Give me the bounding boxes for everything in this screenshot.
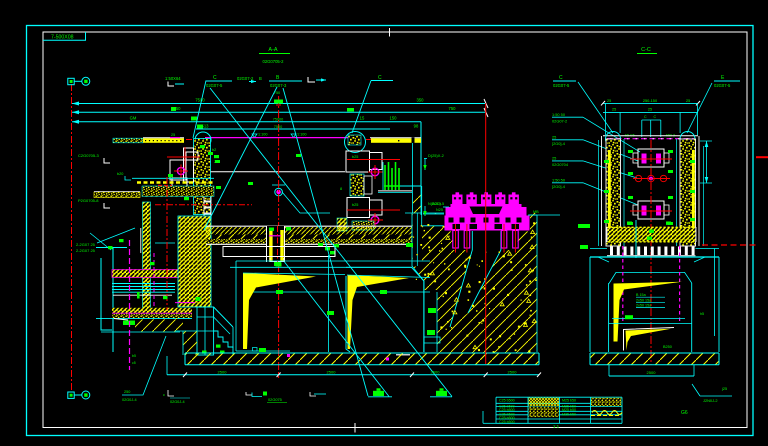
svg-text:25: 25 [607,99,611,103]
svg-text:98: 98 [414,124,419,129]
svg-text:02G07-5: 02G07-5 [206,83,223,88]
svg-text:M25 b50: M25 b50 [562,408,576,412]
svg-text:7500: 7500 [195,98,205,103]
svg-text:250-150: 250-150 [643,98,658,103]
svg-text:250: 250 [124,390,130,394]
svg-text:2x50 15a: 2x50 15a [636,304,652,308]
svg-text:b2: b2 [212,148,216,152]
svg-text:B: B [259,76,262,81]
svg-text:b5: b5 [132,354,136,358]
svg-text:A-A: A-A [268,47,278,53]
svg-text:M25 b50: M25 b50 [562,412,576,416]
svg-text:C25 b500: C25 b500 [499,399,515,403]
svg-text:C25 b500: C25 b500 [499,408,515,412]
svg-text:02G07-5: 02G07-5 [714,83,731,88]
svg-text:J2N0J-2: J2N0J-2 [703,398,718,403]
svg-text:1:50 50: 1:50 50 [552,178,566,183]
svg-text:2500: 2500 [218,370,228,375]
svg-text:02G07-5: 02G07-5 [553,83,570,88]
svg-text:75000: 75000 [273,118,284,122]
svg-text:b20: b20 [117,172,123,176]
svg-text:G6: G6 [681,410,688,416]
svg-text:1:50 50: 1:50 50 [552,112,566,117]
svg-text:1:50X64: 1:50X64 [165,76,181,81]
svg-text:[2G0]-4: [2G0]-4 [552,184,566,189]
svg-text:25: 25 [552,156,556,161]
svg-text:C: C [654,115,657,119]
svg-text:b25: b25 [352,155,358,159]
svg-text:25: 25 [612,108,616,112]
svg-text:2500: 2500 [647,370,657,375]
svg-text:P2G0705-8: P2G0705-8 [78,198,99,203]
svg-text:c5: c5 [132,361,136,365]
svg-text:7500: 7500 [274,125,282,129]
svg-text:25: 25 [171,133,175,137]
svg-text:02G07-2: 02G07-2 [552,118,567,123]
svg-text:B250: B250 [663,345,672,349]
svg-text:B 15a: B 15a [636,293,647,297]
svg-text:02G0704: 02G0704 [552,162,569,167]
svg-text:150: 150 [390,116,398,121]
svg-text:MB: MB [533,210,539,214]
svg-text:1:1: 1:1 [553,424,560,429]
svg-text:02G0705-2: 02G0705-2 [263,59,285,64]
svg-text:C: C [559,75,563,81]
svg-text:GM: GM [130,116,137,121]
svg-text:02G0J-4: 02G0J-4 [170,400,185,404]
svg-text:h5: h5 [700,312,704,316]
svg-text:2-2G07 25: 2-2G07 25 [76,242,96,247]
svg-text:1:100: 1:100 [297,133,307,137]
svg-text:350: 350 [417,98,425,103]
svg-text:2500: 2500 [431,370,441,375]
svg-text:C-C: C-C [641,47,651,53]
svg-text:C25 b500: C25 b500 [499,420,515,424]
svg-text:02G07-3: 02G07-3 [270,83,287,88]
svg-text:[2G0]-4: [2G0]-4 [552,141,566,146]
svg-text:c: c [163,393,165,397]
svg-text:15: 15 [360,116,365,121]
svg-text:2-2G07 25: 2-2G07 25 [76,248,96,253]
svg-text:D(25)X-2: D(25)X-2 [428,153,444,158]
svg-text:C: C [644,115,647,119]
svg-text:C: C [213,75,217,81]
svg-text:N25: N25 [436,208,443,212]
svg-text:b25: b25 [352,203,358,207]
svg-text:25: 25 [686,99,690,103]
svg-text:02G075: 02G075 [268,397,282,402]
svg-text:C2G0705-3: C2G0705-3 [78,153,99,158]
svg-text:7-500X08: 7-500X08 [51,35,74,41]
svg-text:M25 b50: M25 b50 [562,399,576,403]
svg-text:8: 8 [340,187,342,191]
svg-text:2500: 2500 [508,370,518,375]
svg-text:j25: j25 [721,387,727,391]
svg-text:2x50 15a: 2x50 15a [636,298,652,302]
svg-text:2500: 2500 [327,370,337,375]
svg-text:513: 513 [202,124,210,129]
svg-text:1:100: 1:100 [258,133,268,137]
svg-text:25: 25 [552,135,556,140]
svg-text:750: 750 [449,106,457,111]
svg-text:N(2G0)-5: N(2G0)-5 [428,201,444,206]
svg-text:25: 25 [648,108,652,112]
svg-text:02G0J-4: 02G0J-4 [122,398,137,402]
